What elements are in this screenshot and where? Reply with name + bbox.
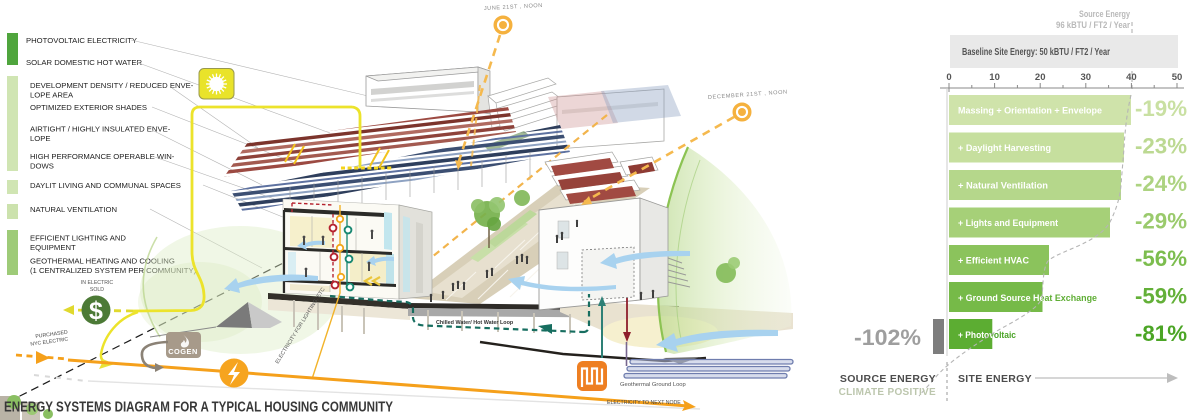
svg-text:Massing + Orientation + Envelo: Massing + Orientation + Envelope: [958, 106, 1102, 117]
svg-text:COGEN: COGEN: [168, 347, 198, 356]
svg-text:LOPE: LOPE: [30, 134, 51, 143]
svg-text:40: 40: [1126, 72, 1137, 83]
svg-text:Geothermal Ground Loop: Geothermal Ground Loop: [620, 382, 686, 388]
svg-text:-56%: -56%: [1135, 246, 1187, 271]
svg-text:30: 30: [1081, 72, 1092, 83]
svg-text:Chilled Water/ Hot Water Loop: Chilled Water/ Hot Water Loop: [436, 320, 514, 326]
svg-text:DAYLIT LIVING AND COMMUNAL SPA: DAYLIT LIVING AND COMMUNAL SPACES: [30, 181, 181, 190]
svg-text:-59%: -59%: [1135, 284, 1187, 309]
svg-text:0: 0: [946, 72, 951, 83]
svg-text:20: 20: [1035, 72, 1046, 83]
svg-text:SOURCE ENERGY: SOURCE ENERGY: [840, 373, 936, 385]
svg-text:EQUIPMENT: EQUIPMENT: [30, 243, 76, 252]
svg-text:96 kBTU / FT2 / Year: 96 kBTU / FT2 / Year: [1056, 20, 1130, 30]
svg-text:DOWS: DOWS: [30, 162, 54, 171]
svg-text:-81%: -81%: [1135, 321, 1187, 346]
svg-text:PHOTOVOLTAIC ELECTRICITY: PHOTOVOLTAIC ELECTRICITY: [26, 36, 137, 45]
svg-text:CLIMATE POSITIVE: CLIMATE POSITIVE: [839, 387, 936, 398]
svg-text:SOLAR DOMESTIC HOT WATER: SOLAR DOMESTIC HOT WATER: [26, 58, 142, 67]
svg-text:+ Daylight Harvesting: + Daylight Harvesting: [958, 143, 1051, 154]
svg-text:-29%: -29%: [1135, 209, 1187, 234]
svg-text:$: $: [89, 297, 103, 325]
svg-text:ELECTRICITY TO NEXT NODE: ELECTRICITY TO NEXT NODE: [607, 400, 681, 406]
svg-text:AIRTIGHT / HIGHLY INSULATED EN: AIRTIGHT / HIGHLY INSULATED ENVE-: [30, 125, 171, 134]
svg-text:-19%: -19%: [1135, 96, 1187, 121]
svg-text:-23%: -23%: [1135, 134, 1187, 159]
svg-text:-24%: -24%: [1135, 171, 1187, 196]
svg-text:SITE ENERGY: SITE ENERGY: [958, 373, 1032, 385]
svg-text:IN ELECTRIC: IN ELECTRIC: [81, 280, 114, 286]
svg-text:-102%: -102%: [854, 325, 921, 350]
svg-text:JUNE 21ST , NOON: JUNE 21ST , NOON: [484, 3, 543, 12]
svg-text:DECEMBER 21ST , NOON: DECEMBER 21ST , NOON: [708, 89, 788, 101]
svg-text:+ Lights and Equipment: + Lights and Equipment: [958, 218, 1059, 229]
svg-text:NATURAL VENTILATION: NATURAL VENTILATION: [30, 205, 117, 214]
svg-text:Baseline Site Energy: 50 kBTU: Baseline Site Energy: 50 kBTU / FT2 / Ye…: [962, 47, 1110, 58]
svg-text:10: 10: [989, 72, 1000, 83]
svg-text:DEVELOPMENT DENSITY / REDUCED: DEVELOPMENT DENSITY / REDUCED ENVE-: [30, 81, 194, 90]
svg-text:50: 50: [1172, 72, 1183, 83]
svg-text:+ Natural Ventilation: + Natural Ventilation: [958, 181, 1048, 192]
svg-text:SOLD: SOLD: [90, 287, 104, 293]
svg-text:OPTIMIZED EXTERIOR SHADES: OPTIMIZED EXTERIOR SHADES: [30, 103, 147, 112]
svg-text:+ Efficient HVAC: + Efficient HVAC: [958, 256, 1029, 267]
svg-text:ENERGY SYSTEMS DIAGRAM FOR A T: ENERGY SYSTEMS DIAGRAM FOR A TYPICAL HOU…: [4, 400, 393, 416]
svg-text:EFFICIENT LIGHTING AND: EFFICIENT LIGHTING AND: [30, 234, 126, 243]
svg-text:LOPE AREA: LOPE AREA: [30, 91, 74, 100]
svg-text:Source Energy: Source Energy: [1079, 9, 1130, 19]
